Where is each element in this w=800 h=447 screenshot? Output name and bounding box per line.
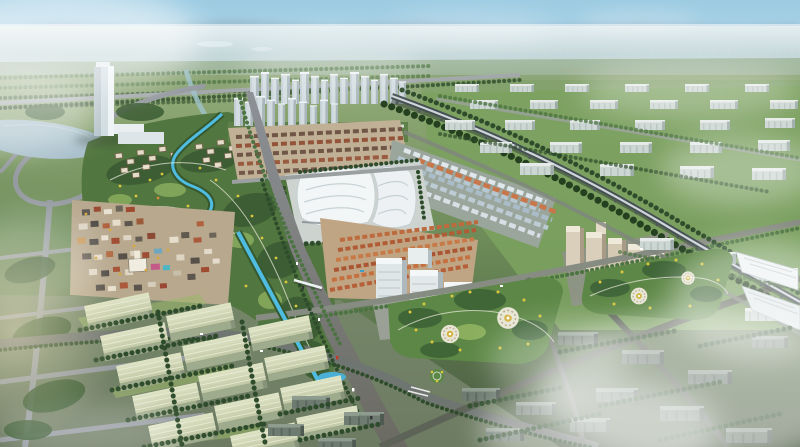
- screenshot-root: Aerial master-plan rendering of a new ci…: [0, 0, 800, 447]
- circular-garden: [631, 288, 648, 305]
- distant-lake-glint: [197, 41, 233, 47]
- circular-garden: [441, 325, 459, 343]
- village-pool: [360, 270, 364, 272]
- cloud: [390, 12, 550, 48]
- tower-podium: [118, 132, 164, 144]
- fog-bank: [490, 320, 630, 400]
- old-town-landmark: [128, 258, 147, 272]
- cloud: [580, 10, 700, 30]
- cloud: [580, 60, 800, 120]
- cloud: [240, 34, 420, 86]
- cityscape-rendering: Aerial master-plan rendering of a new ci…: [0, 0, 800, 447]
- hall-roof-east-lobe: [372, 166, 416, 227]
- circular-garden: [497, 307, 519, 329]
